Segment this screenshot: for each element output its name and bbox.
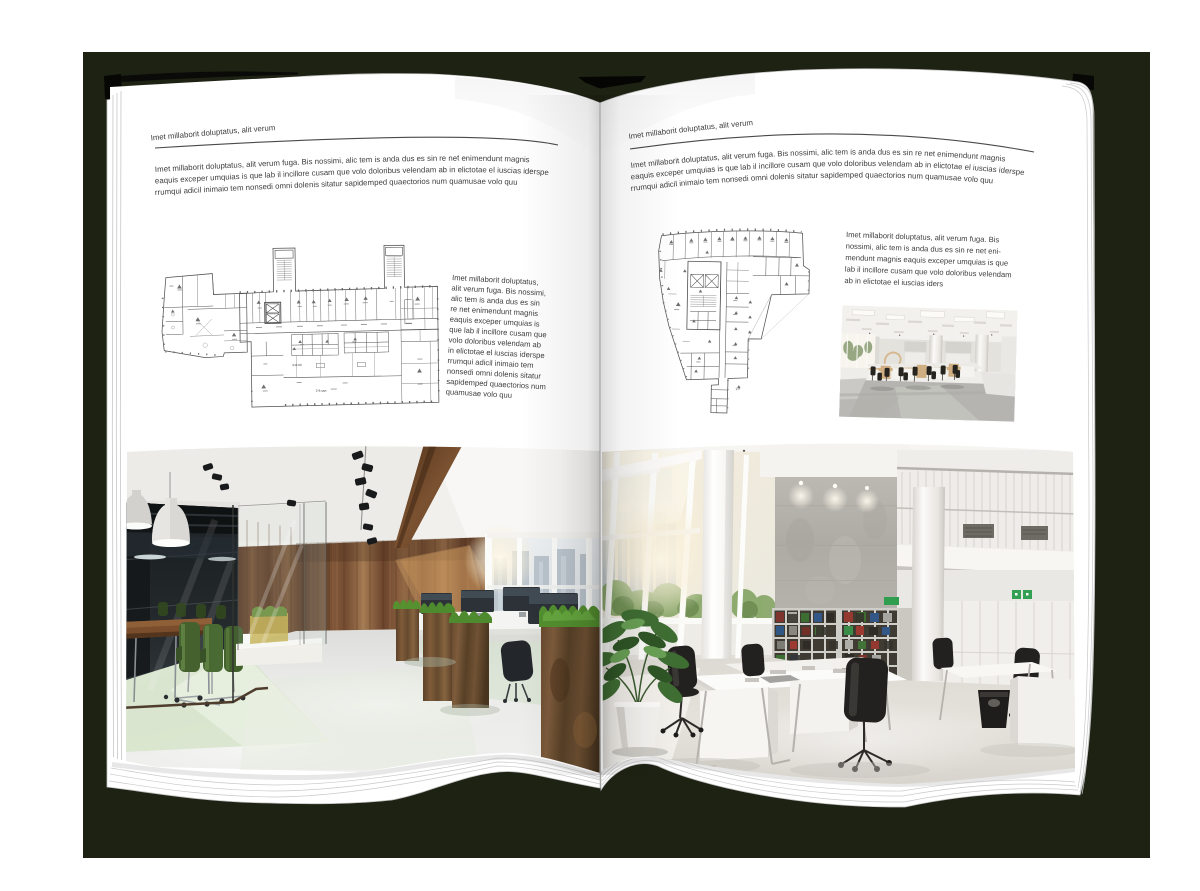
svg-text:542.00: 542.00 — [292, 363, 302, 367]
svg-text:2-й зал: 2-й зал — [316, 389, 327, 393]
